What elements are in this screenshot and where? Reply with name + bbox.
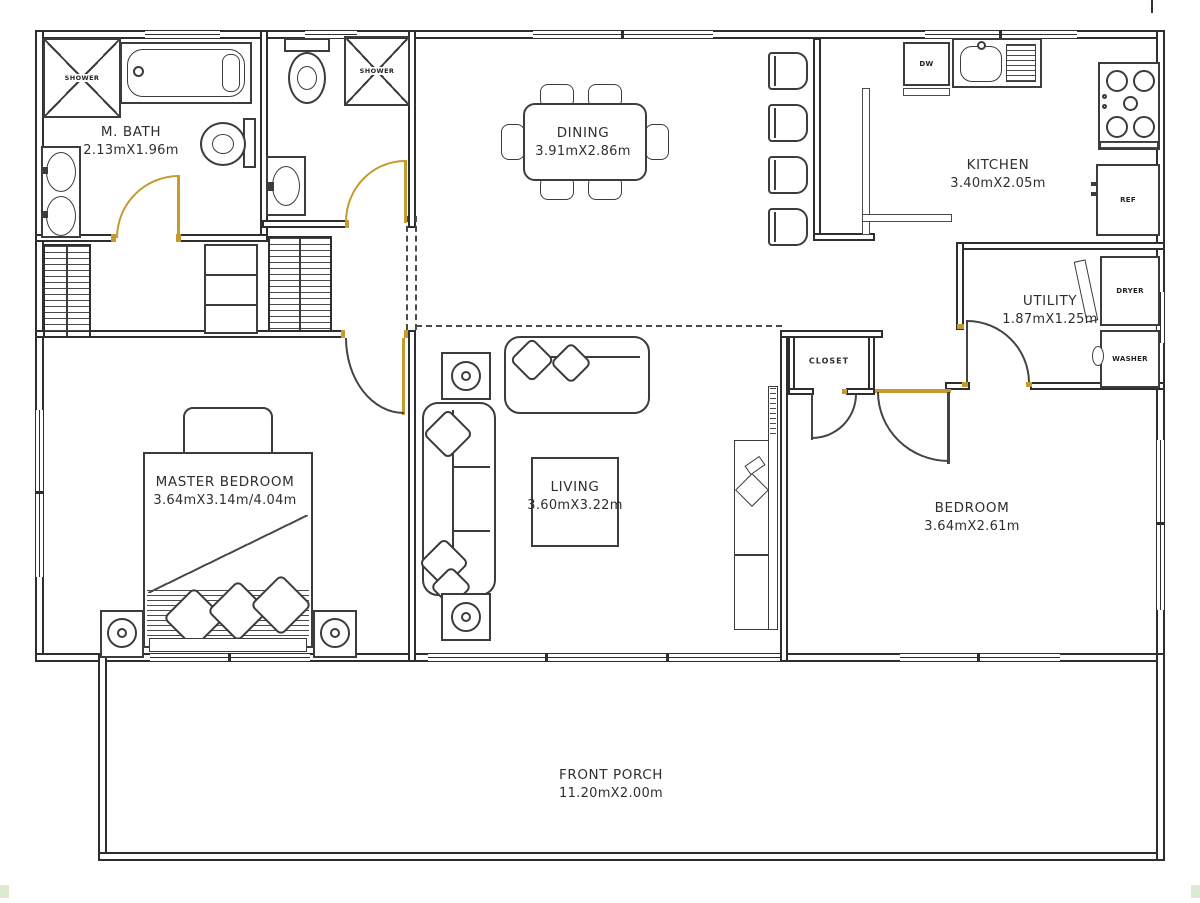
window-bottom-bedroom [900,653,1060,662]
cursor-mark [1151,0,1153,13]
kitchen-cabinet [903,88,950,96]
wall-bedroom-left [780,330,788,662]
bathtub-drain [133,66,144,77]
kitchen-faucet [977,41,986,50]
archway-dashed-left-b [415,216,417,330]
archway-dashed-left-a [406,216,408,330]
kitchen-counter-edge [862,88,870,235]
linen-shelf-left [43,244,91,338]
wall-utility-top [956,242,1165,250]
toilet-bath2-tank [284,38,330,52]
refrigerator: REF [1096,164,1160,236]
dishwasher-label: DW [919,60,933,68]
hall-cabinet [204,244,258,334]
wall-kitchen-peninsula [813,38,821,241]
wall-closet-left [788,336,795,395]
door-arc-master [345,338,404,414]
shower-mbath-label: SHOWER [63,74,102,82]
stove-burner [1133,116,1155,138]
sink-basin-1 [46,152,76,192]
shower-bath2-label: SHOWER [358,67,397,75]
porch-wall-bottom [98,852,1165,861]
refrigerator-label: REF [1120,196,1136,204]
door-arc-bedroom [877,392,949,462]
window-right-bedroom [1156,440,1165,610]
corner-marker-left [0,885,9,898]
washer-label: WASHER [1112,355,1148,363]
room-label-utility: UTILITY 1.87mX1.25m [1002,293,1097,327]
kitchen-sink-bowl [960,46,1002,82]
dryer: DRYER [1100,256,1160,326]
room-label-dining: DINING 3.91mX2.86m [535,125,630,159]
sink-basin-2 [46,196,76,236]
door-arc-mbath [116,175,179,238]
room-label-living: LIVING 3.60mX3.22m [527,479,622,513]
stove-burner [1106,70,1128,92]
room-label-master: MASTER BEDROOM 3.64mX3.14m/4.04m [153,474,296,508]
bathtub-headrest [222,54,240,92]
wall-closet-right [868,336,875,395]
tv-mount [770,388,776,438]
stove-burner-center [1123,96,1138,111]
porch-wall-right [1156,653,1165,861]
window-top-mbath [145,30,220,39]
stove-grill [1100,141,1158,149]
floor-plan: SHOWER SHOWER DW [0,0,1200,903]
window-bottom-living [428,653,780,662]
wall-mbath-bottom-right [176,234,268,242]
door-arc-closet [812,394,857,439]
room-label-porch: FRONT PORCH 11.20mX2.00m [559,767,663,801]
stove-burner [1106,116,1128,138]
washer-knob [1092,346,1104,366]
archway-dashed-horizontal [416,325,782,327]
room-label-closet: CLOSET [809,357,849,366]
corner-marker-right [1191,885,1200,898]
wall-utility-left [956,242,964,330]
wall-bath2-bottom [262,220,348,228]
room-label-mbath: M. BATH 2.13mX1.96m [83,124,178,158]
shower-stall-mbath: SHOWER [43,38,121,118]
linen-shelf-hall [268,236,332,332]
dining-chair [645,124,669,160]
kitchen-drainboard [1006,44,1036,82]
kitchen-counter-bottom [862,214,952,222]
bed-headboard [149,638,307,652]
washer: WASHER [1100,330,1160,388]
wall-living-left [408,330,416,662]
porch-wall-left [98,653,107,861]
stove-burner [1133,70,1155,92]
shower-stall-bath2: SHOWER [344,36,410,106]
door-arc-utility [967,320,1030,383]
dryer-label: DRYER [1116,287,1144,295]
room-label-kitchen: KITCHEN 3.40mX2.05m [950,157,1045,191]
dishwasher: DW [903,42,950,86]
dining-chair [501,124,525,160]
room-label-bedroom: BEDROOM 3.64mX2.61m [924,500,1019,534]
door-arc-bath2 [345,160,405,222]
